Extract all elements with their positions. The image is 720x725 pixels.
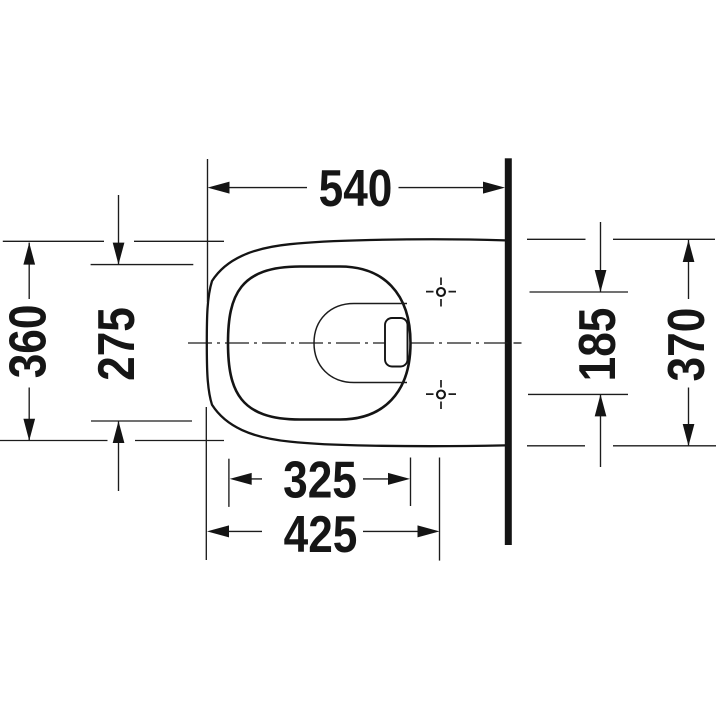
svg-text:185: 185 <box>569 308 627 382</box>
svg-text:325: 325 <box>283 451 357 509</box>
svg-text:425: 425 <box>284 506 358 564</box>
svg-text:370: 370 <box>658 308 716 382</box>
svg-text:275: 275 <box>88 307 146 381</box>
svg-text:540: 540 <box>319 160 393 218</box>
svg-text:360: 360 <box>0 305 58 379</box>
